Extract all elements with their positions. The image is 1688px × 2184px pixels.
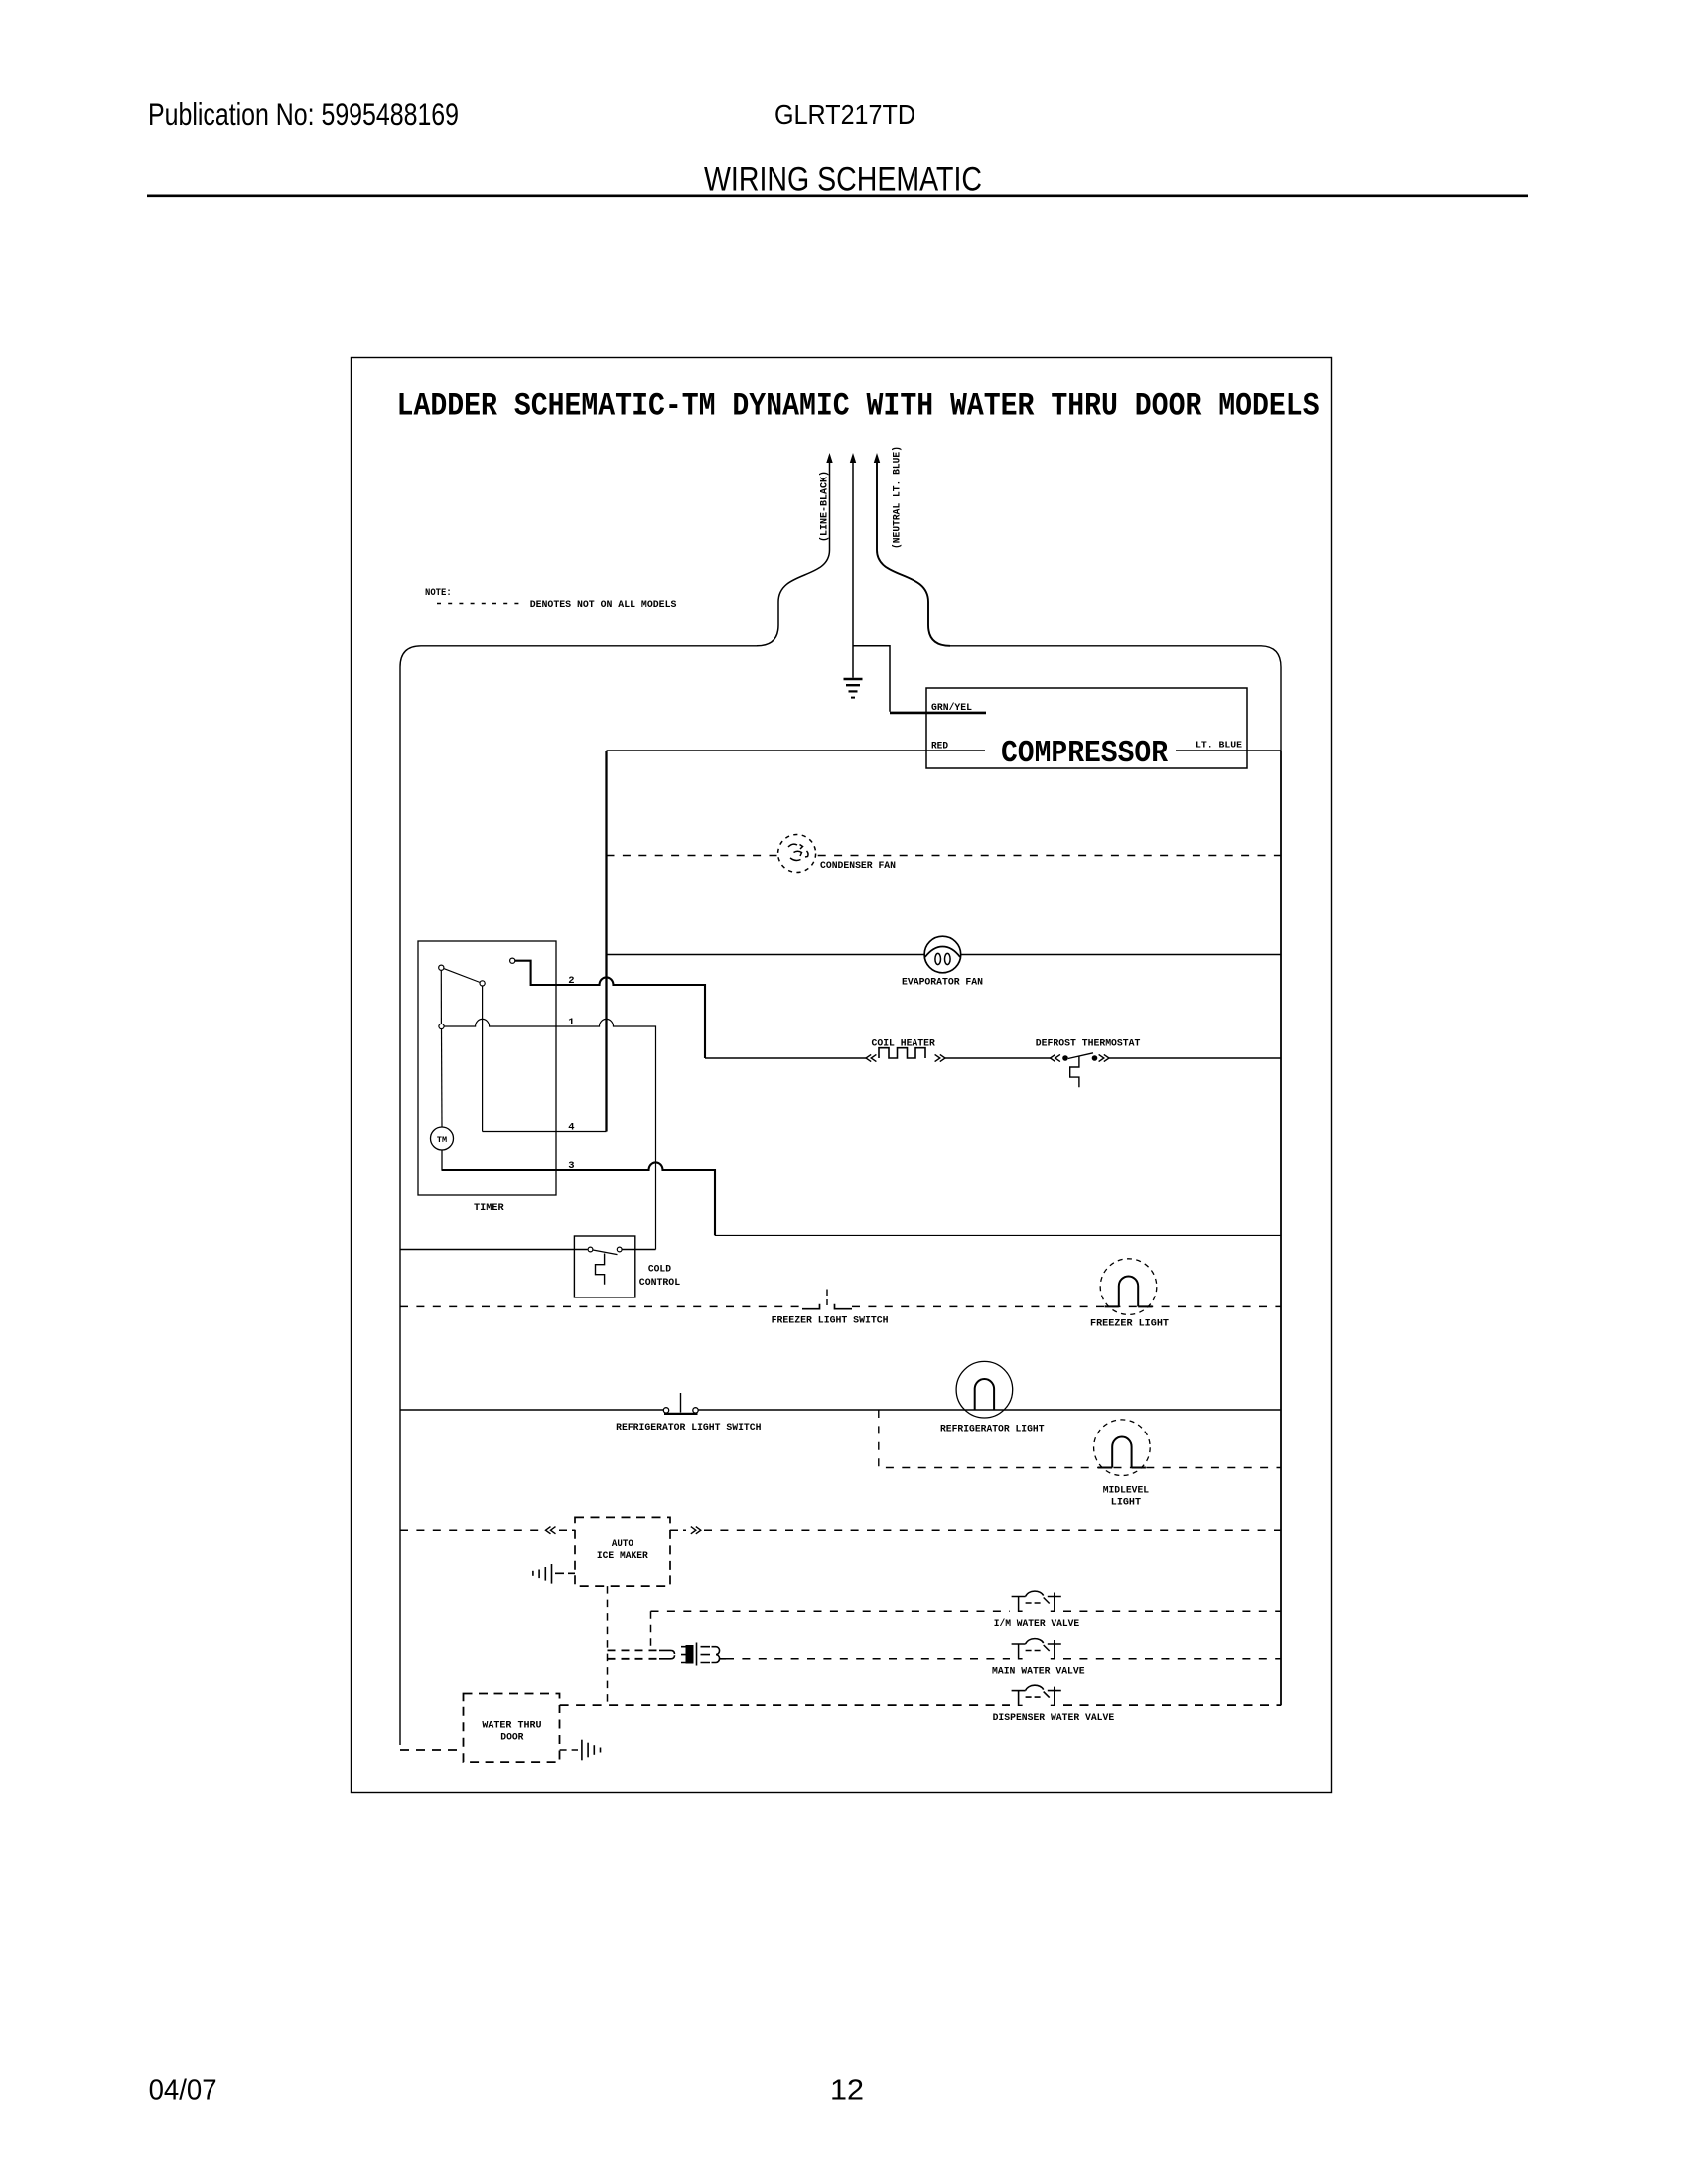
svg-text:3: 3	[568, 1160, 574, 1172]
svg-text:AUTO: AUTO	[612, 1538, 633, 1550]
svg-text:DISPENSER WATER VALVE: DISPENSER WATER VALVE	[993, 1712, 1115, 1724]
svg-text:4: 4	[568, 1122, 574, 1134]
svg-text:RED: RED	[931, 741, 948, 752]
svg-text:NOTE:: NOTE:	[425, 587, 452, 599]
svg-text:REFRIGERATOR LIGHT SWITCH: REFRIGERATOR LIGHT SWITCH	[616, 1422, 761, 1433]
svg-text:I/M WATER VALVE: I/M WATER VALVE	[994, 1618, 1079, 1630]
svg-text:CONDENSER FAN: CONDENSER FAN	[820, 860, 896, 872]
svg-text:Publication No: 5995488169: Publication No: 5995488169	[148, 96, 459, 132]
svg-text:ICE MAKER: ICE MAKER	[597, 1550, 649, 1562]
svg-text:2: 2	[568, 975, 574, 987]
svg-text:GRN/YEL: GRN/YEL	[931, 702, 972, 714]
svg-text:TIMER: TIMER	[474, 1202, 504, 1214]
svg-text:REFRIGERATOR LIGHT: REFRIGERATOR LIGHT	[940, 1424, 1045, 1435]
svg-text:LT. BLUE: LT. BLUE	[1196, 740, 1242, 751]
svg-text:FREEZER LIGHT: FREEZER LIGHT	[1090, 1317, 1169, 1329]
svg-text:TM: TM	[437, 1135, 447, 1145]
svg-text:12: 12	[830, 2075, 864, 2107]
svg-text:WIRING SCHEMATIC: WIRING SCHEMATIC	[704, 161, 982, 199]
svg-text:COLD: COLD	[648, 1264, 671, 1276]
svg-text:FREEZER LIGHT SWITCH: FREEZER LIGHT SWITCH	[772, 1315, 889, 1327]
svg-text:(NEUTRAL LT. BLUE): (NEUTRAL LT. BLUE)	[892, 446, 904, 549]
svg-text:1: 1	[568, 1017, 574, 1028]
svg-text:CONTROL: CONTROL	[639, 1277, 680, 1289]
svg-text:WATER THRU: WATER THRU	[482, 1720, 541, 1732]
svg-text:DEFROST THERMOSTAT: DEFROST THERMOSTAT	[1036, 1038, 1141, 1050]
svg-text:COMPRESSOR: COMPRESSOR	[1001, 736, 1168, 771]
svg-text:DENOTES NOT ON ALL MODELS: DENOTES NOT ON ALL MODELS	[530, 599, 677, 611]
svg-text:EVAPORATOR FAN: EVAPORATOR FAN	[902, 977, 983, 989]
svg-text:DOOR: DOOR	[500, 1732, 524, 1744]
svg-text:04/07: 04/07	[149, 2075, 217, 2107]
svg-text:LADDER SCHEMATIC-TM DYNAMIC WI: LADDER SCHEMATIC-TM DYNAMIC WITH WATER T…	[397, 389, 1320, 425]
svg-text:(LINE-BLACK): (LINE-BLACK)	[819, 471, 831, 542]
svg-text:COIL HEATER: COIL HEATER	[872, 1038, 936, 1050]
svg-text:MIDLEVEL: MIDLEVEL	[1103, 1485, 1149, 1497]
svg-text:MAIN WATER VALVE: MAIN WATER VALVE	[992, 1666, 1085, 1678]
svg-text:GLRT217TD: GLRT217TD	[774, 99, 915, 130]
svg-text:LIGHT: LIGHT	[1111, 1497, 1141, 1509]
